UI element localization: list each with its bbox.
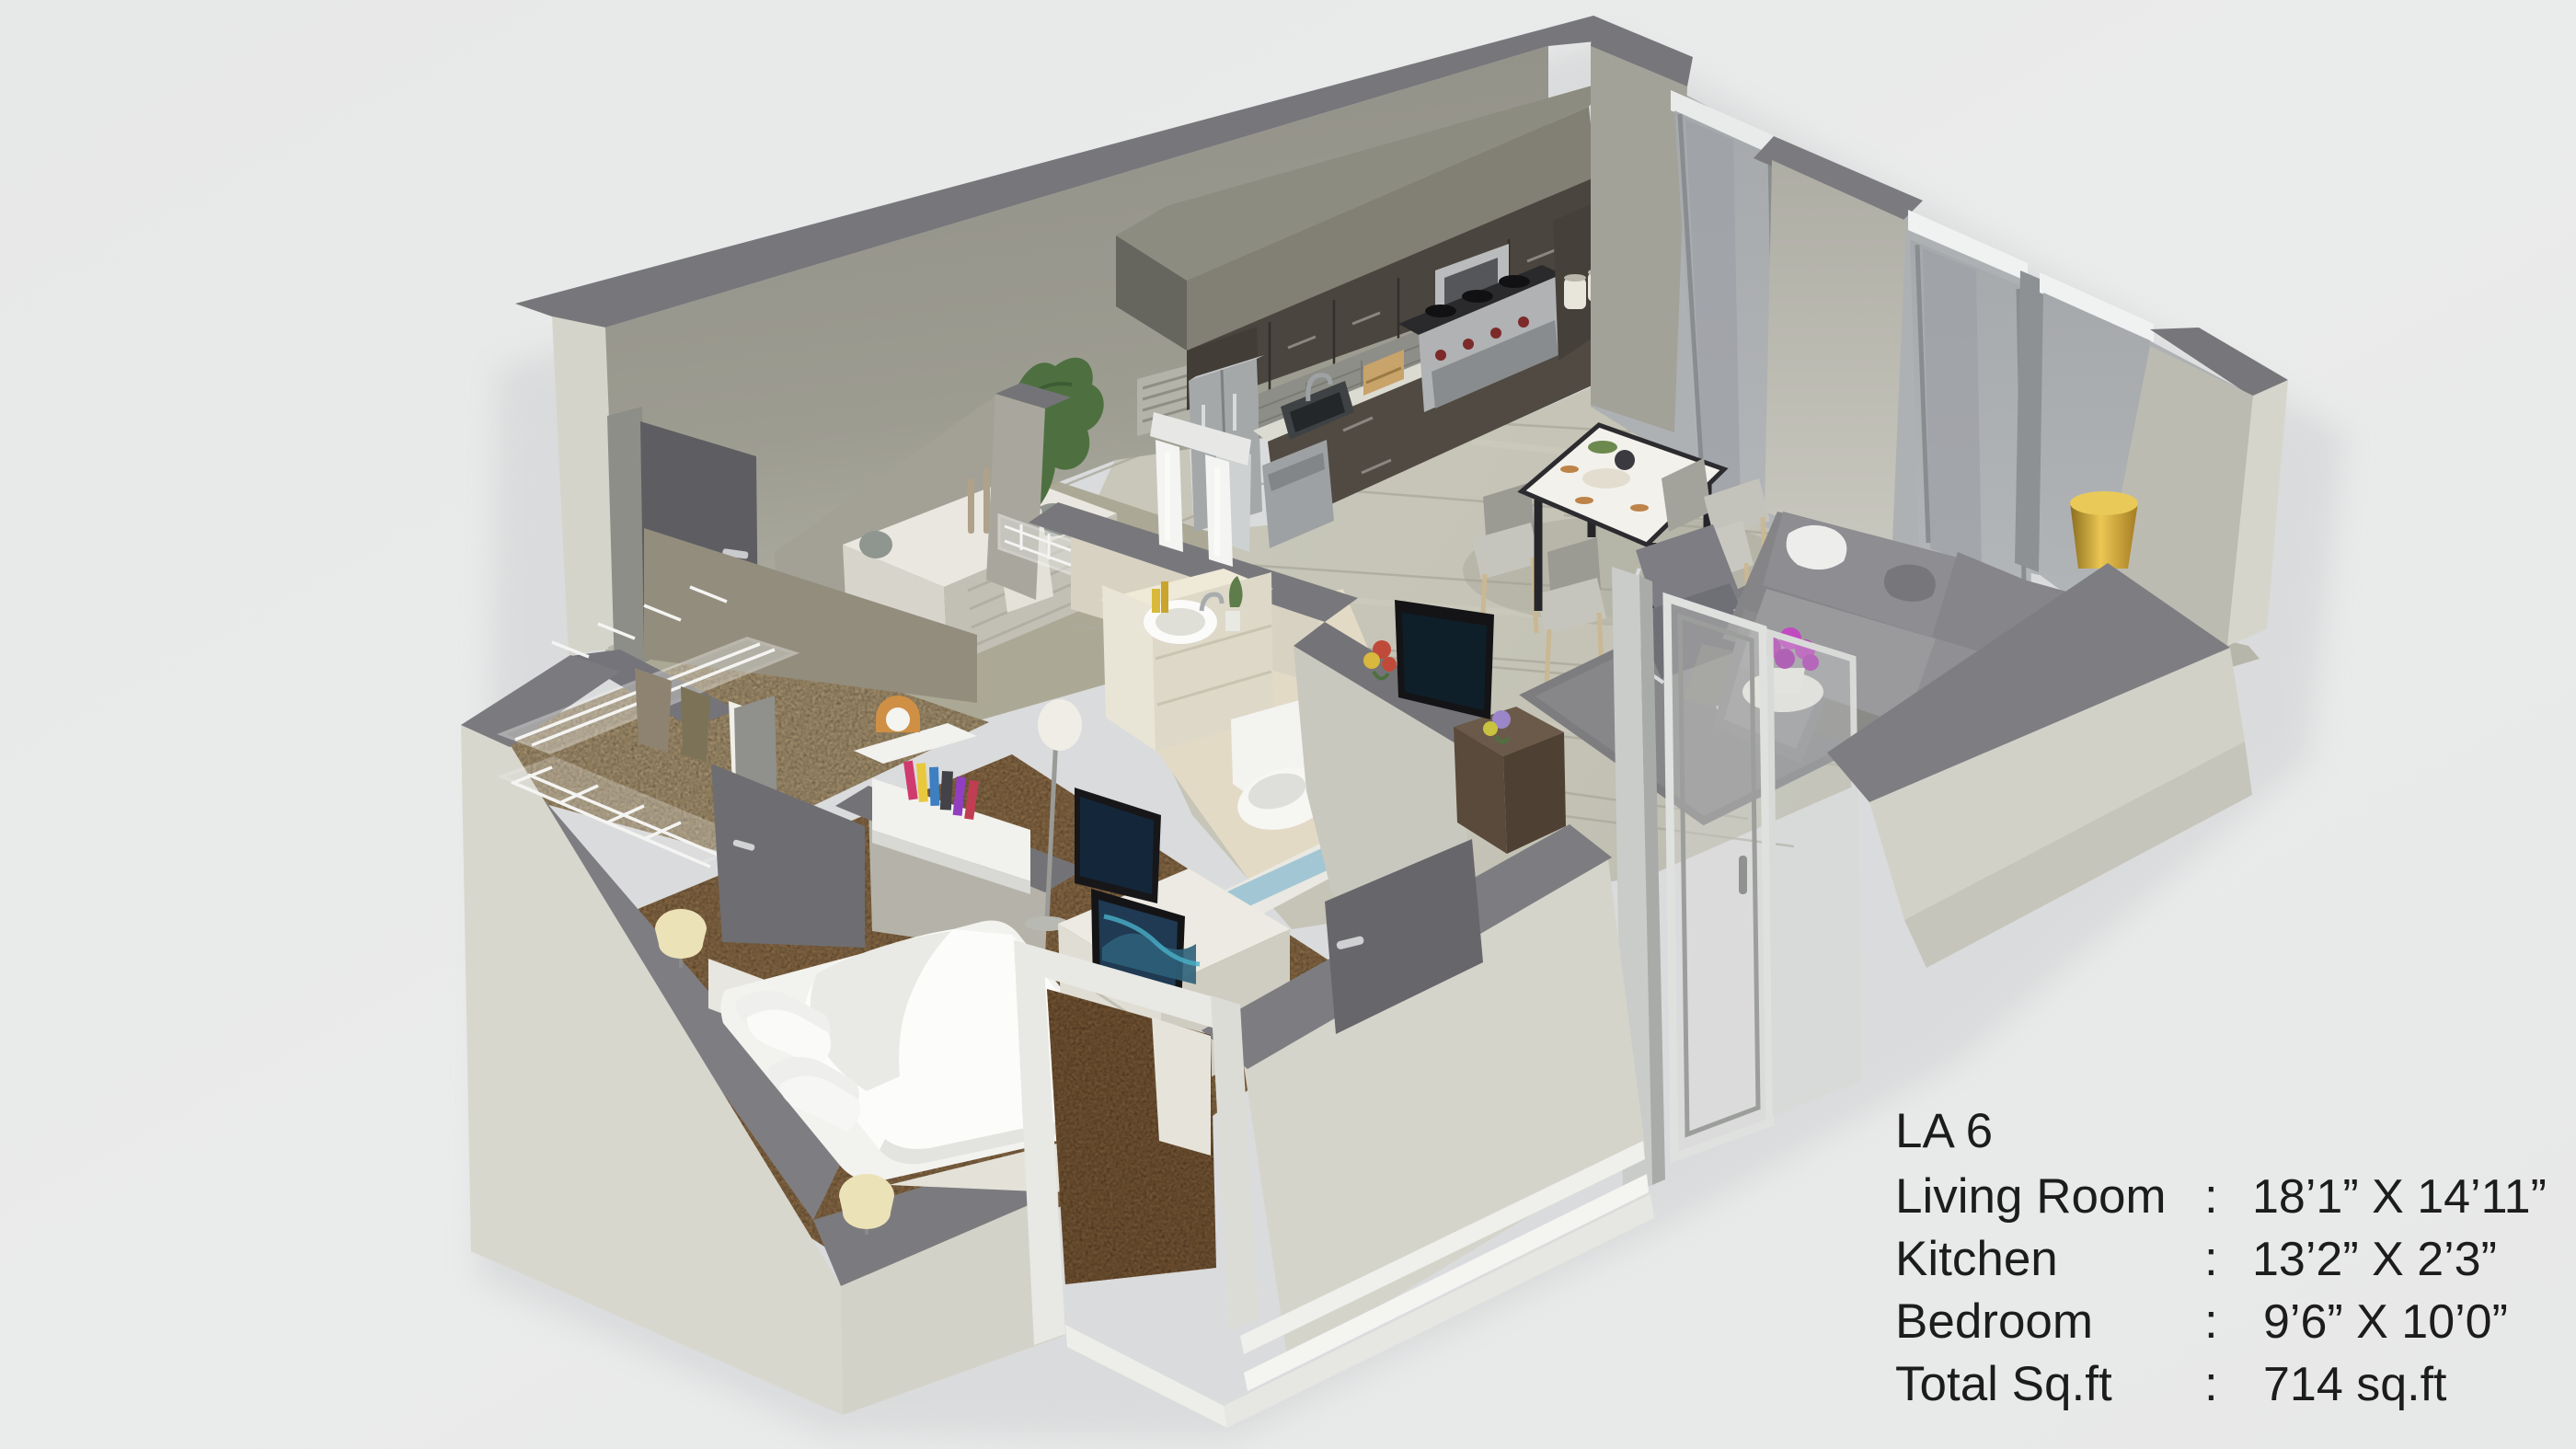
svg-text:Kitchen: Kitchen xyxy=(1895,1232,2058,1286)
svg-text::: : xyxy=(2204,1294,2218,1349)
svg-text::: : xyxy=(2204,1232,2218,1286)
svg-text:Bedroom: Bedroom xyxy=(1895,1294,2093,1349)
svg-text::: : xyxy=(2204,1357,2218,1411)
svg-text:13’2” X 2’3”: 13’2” X 2’3” xyxy=(2252,1233,2497,1286)
svg-text:Living Room: Living Room xyxy=(1895,1169,2167,1224)
svg-text:Total Sq.ft: Total Sq.ft xyxy=(1895,1357,2112,1411)
svg-text:9’6” X 10’0”: 9’6” X 10’0” xyxy=(2263,1295,2508,1349)
svg-text:LA 6: LA 6 xyxy=(1895,1104,1993,1158)
svg-text:714 sq.ft: 714 sq.ft xyxy=(2263,1358,2447,1411)
svg-text::: : xyxy=(2204,1169,2218,1224)
svg-text:18’1” X 14’11”: 18’1” X 14’11” xyxy=(2252,1170,2547,1224)
